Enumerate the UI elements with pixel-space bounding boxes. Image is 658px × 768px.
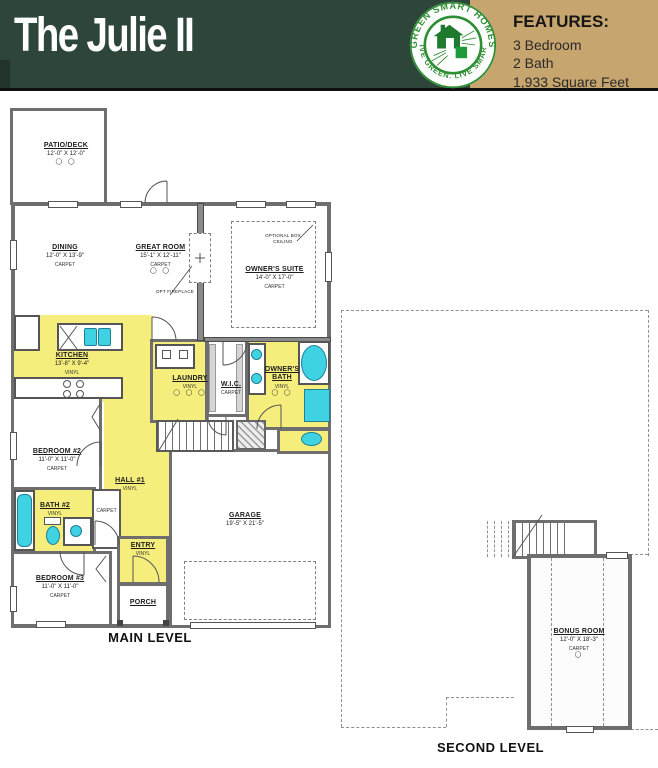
room-label-hall-closet: CARPET (92, 507, 121, 514)
room-label-entry: ENTRY VINYL (117, 542, 169, 557)
wic-shelf-right (236, 344, 243, 412)
second-level-outline (630, 554, 648, 555)
second-level-title: SECOND LEVEL (428, 740, 553, 755)
garage-optional-area-outline (184, 561, 316, 620)
features-list: FEATURES: 3 Bedroom 2 Bath 1,933 Square … (513, 12, 629, 91)
stove-burner (63, 380, 71, 388)
second-level-outline (446, 697, 447, 727)
feature-bedrooms: 3 Bedroom (513, 36, 629, 54)
stove-burner (63, 390, 71, 398)
second-level-outline (648, 310, 649, 556)
porch-post (163, 620, 169, 626)
features-heading: FEATURES: (513, 12, 629, 32)
room-label-hall1: HALL #1 VINYL (100, 477, 160, 492)
stair-continuation-dash (501, 521, 502, 557)
owners-bath-sink1 (251, 349, 262, 360)
second-level-stairs (515, 523, 570, 556)
bath2-sink (70, 525, 82, 537)
mudroom-hatch-area (236, 420, 266, 450)
room-label-garage: GARAGE 19'-5" X 21'-5" (205, 512, 285, 529)
stair-continuation-dash (508, 521, 509, 557)
porch-post (117, 620, 123, 626)
washer-knob (162, 350, 171, 359)
second-level-outline (341, 310, 342, 727)
bonus-window (606, 552, 628, 559)
second-level-outline (341, 727, 446, 728)
bath2-toilet-tank (44, 517, 61, 525)
room-label-owners-bath: OWNER'S BATH VINYL ◯ ◯ (254, 366, 310, 397)
window (10, 240, 17, 270)
green-smart-homes-logo: GREEN SMART HOMES LIVE GREEN. LIVE SMART… (409, 1, 497, 89)
room-label-porch: PORCH (118, 599, 168, 607)
owners-toilet (301, 432, 322, 446)
window (120, 201, 142, 208)
corner-mark (0, 60, 10, 88)
room-label-dining: DINING 12'-0" X 13'-9" CARPET (20, 244, 110, 268)
door-arc-patio (145, 181, 167, 203)
dryer-knob (179, 350, 188, 359)
room-label-kitchen: KITCHEN 13'-8" X 9'-4" VINYL (28, 352, 116, 376)
room-label-bath2: BATH #2 VINYL (25, 502, 85, 517)
room-label-patio: PATIO/DECK 12'-0" X 12'-0" ◯ ◯ (18, 142, 114, 166)
feature-sqft: 1,933 Square Feet (513, 73, 629, 91)
window (325, 252, 332, 282)
stove-burner (76, 380, 84, 388)
window (236, 201, 266, 208)
second-level-outline (631, 729, 658, 730)
main-level-title: MAIN LEVEL (98, 630, 202, 645)
stair-continuation-dash (494, 521, 495, 557)
room-bedroom2 (11, 396, 102, 493)
main-stairs (156, 420, 234, 452)
bath2-toilet (46, 526, 60, 545)
kitchen-sink-left (84, 328, 97, 346)
kitchen-pantry-cabinet (14, 315, 40, 351)
washer-dryer (155, 344, 195, 369)
kitchen-sink-right (98, 328, 111, 346)
annotation-fireplace: OPT FIREPLACE (150, 289, 200, 295)
second-level-outline (341, 310, 648, 311)
room-label-wic: W.I.C. CARPET (211, 381, 251, 396)
stove-burner (76, 390, 84, 398)
window (48, 201, 78, 208)
room-label-bedroom2: BEDROOM #2 11'-0" X 11'-0" CARPET (14, 448, 100, 472)
garage-door (190, 622, 316, 629)
bonus-door (566, 726, 594, 733)
room-label-owners-suite: OWNER'S SUITE 14'-0" X 17'-0" CARPET (237, 266, 312, 290)
window (286, 201, 316, 208)
second-level-outline (446, 697, 514, 698)
feature-baths: 2 Bath (513, 54, 629, 72)
room-label-bonus: BONUS ROOM 12'-0" X 18'-3" CARPET ◯ (541, 628, 617, 659)
room-label-bedroom3: BEDROOM #3 11'-0" X 11'-0" CARPET (15, 575, 105, 599)
annotation-box-ceiling: OPTIONAL BOX CEILING (256, 233, 310, 245)
window (36, 621, 66, 628)
room-label-great-room: GREAT ROOM 15'-1" X 12'-11" CARPET ◯ ◯ (113, 244, 208, 275)
page-title: The Julie II (14, 8, 193, 63)
stair-continuation-dash (487, 521, 488, 557)
floor-plan-flyer: The Julie II FEATURES: 3 Bedroom 2 Bath … (0, 0, 658, 768)
